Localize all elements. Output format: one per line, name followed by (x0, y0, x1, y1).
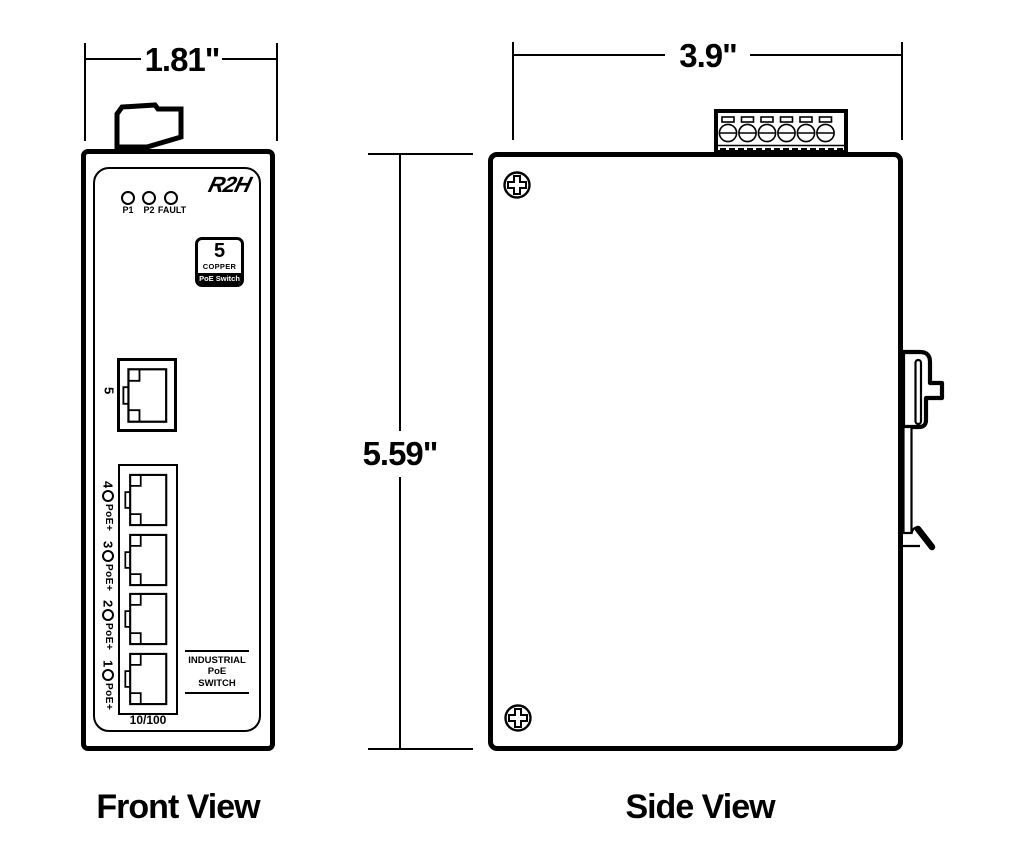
rj45-port-4 (124, 473, 168, 527)
badge-port-count: 5 (214, 241, 225, 261)
port-2-number: 2 (102, 600, 115, 607)
dim-side-width-line-right (750, 54, 903, 56)
rj45-port-3 (124, 533, 168, 587)
front-power-connector (113, 101, 185, 153)
dim-height-line-top (399, 155, 401, 431)
panel-text-line1: INDUSTRIAL (185, 655, 249, 666)
led-p1-label: P1 (117, 206, 139, 215)
rj45-port-2 (124, 592, 168, 646)
port-4-poe-label: PoE+ (103, 504, 113, 531)
port-2-poe-label: PoE+ (103, 623, 113, 650)
dim-front-width-line-left (85, 58, 141, 60)
dim-front-width-line-right (222, 58, 277, 60)
port-count-badge: 5 COPPER PoE Switch (195, 237, 244, 287)
brand-logo: R2H (181, 174, 252, 196)
badge-media-label: COPPER (203, 263, 236, 271)
port-2-label: 2 PoE+ (96, 600, 120, 651)
front-view-caption: Front View (78, 788, 278, 827)
dim-height-tick-top (368, 153, 473, 155)
port-3-poe-led (102, 550, 114, 562)
dim-height-tick-bottom (368, 748, 473, 750)
panel-text-line3: SWITCH (185, 678, 249, 689)
panel-text-line2: PoE (185, 666, 249, 677)
led-fault-label: FAULT (153, 206, 191, 215)
port-5-label: 5 (97, 387, 121, 394)
led-p1 (121, 191, 135, 205)
port-4-label: 4 PoE+ (96, 481, 120, 532)
side-view-caption: Side View (600, 788, 800, 827)
led-fault (164, 191, 178, 205)
dim-front-width-value: 1.81" (138, 43, 226, 76)
rj45-port-5 (122, 367, 168, 424)
dim-height-value: 5.59" (354, 437, 446, 470)
dim-side-width-line-left (513, 54, 665, 56)
side-enclosure-outline (488, 152, 903, 751)
port-4-number: 4 (102, 481, 115, 488)
phillips-screw-bottom-icon (503, 703, 533, 733)
port-1-label: 1 PoE+ (96, 660, 120, 711)
terminal-block (714, 109, 848, 154)
phillips-screw-top-icon (502, 170, 532, 200)
industrial-poe-switch-label: INDUSTRIAL PoE SWITCH (185, 650, 249, 694)
dim-side-width-ext-right (901, 42, 903, 140)
din-rail-clip (898, 340, 954, 560)
port-1-number: 1 (102, 660, 115, 667)
port-3-number: 3 (102, 541, 115, 548)
poe-switch-dimension-drawing: 1.81" 3.9" 5.59" P1 P2 FAULT R2H 5 COPPE… (0, 0, 1024, 857)
port-1-poe-label: PoE+ (103, 683, 113, 710)
port-4-poe-led (102, 490, 114, 502)
dim-side-width-value: 3.9" (663, 39, 753, 72)
rj45-port-1 (124, 652, 168, 706)
speed-label: 10/100 (112, 713, 184, 727)
port-3-poe-label: PoE+ (103, 564, 113, 591)
port-1-poe-led (102, 669, 114, 681)
dim-side-width-ext-left (512, 42, 514, 140)
dim-height-line-bottom (399, 477, 401, 748)
badge-product-label: PoE Switch (198, 273, 241, 286)
port-2-poe-led (102, 609, 114, 621)
port-3-label: 3 PoE+ (96, 541, 120, 592)
led-p2 (142, 191, 156, 205)
port-5-number: 5 (103, 387, 116, 394)
